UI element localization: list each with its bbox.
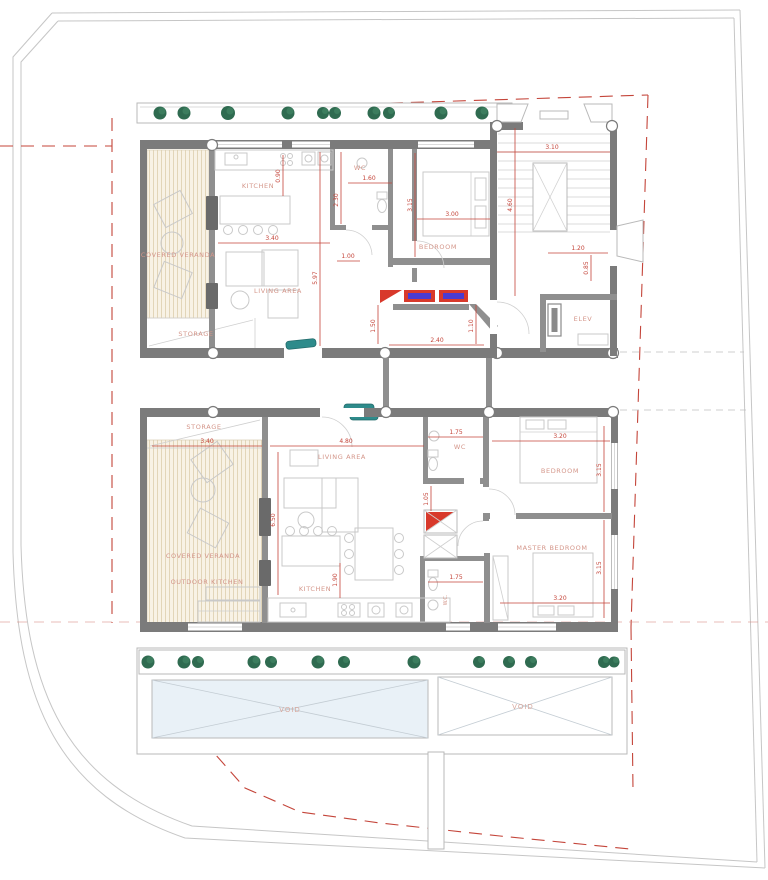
door-arc-master [458, 521, 483, 546]
room-label-storage-upper: STORAGE [178, 330, 213, 338]
dim-lower-bedroom-height: 3.15 [596, 463, 603, 477]
dim-upper-bedroom-width: 3.00 [445, 211, 459, 218]
dim-upper-kitchen-depth: 0.90 [275, 169, 282, 183]
room-label-wc2-lower: W.C. [443, 595, 449, 606]
closet-units-red [380, 290, 468, 303]
dim-lower-bedroom-width: 3.20 [553, 433, 567, 440]
dim-upper-veranda-width: 3.40 [265, 235, 279, 242]
void-right: VOID [438, 677, 612, 735]
dim-upper-stair-height: 4.60 [507, 198, 514, 212]
master-bedroom-furniture [533, 553, 593, 617]
room-label-wc-upper: WC [354, 164, 366, 172]
dim-upper-elev-height: 0.85 [583, 261, 590, 275]
dim-upper-elev-width: 1.20 [571, 245, 585, 252]
dim-corridor-width: 2.40 [430, 337, 444, 344]
room-label-elev: ELEV [574, 315, 593, 323]
floor-plan-page: COVERED VERANDA STORAGE KITCHEN WC LIVIN… [0, 0, 768, 880]
dim-master-height: 3.15 [596, 561, 603, 575]
void-left-label: VOID [279, 706, 301, 714]
room-label-outdoor-kitchen: OUTDOOR KITCHEN [171, 578, 244, 586]
room-label-storage-lower: STORAGE [186, 423, 221, 431]
dim-lower-living-height: 6.50 [270, 513, 277, 527]
dim-wc2-width: 1.75 [449, 574, 463, 581]
dim-upper-wc-width: 1.60 [362, 175, 376, 182]
dim-lower-wc-height: 1.05 [423, 492, 430, 506]
dim-upper-hall-width: 1.00 [341, 253, 355, 260]
room-label-living-upper: LIVING AREA [254, 287, 302, 295]
living-upper-furniture [226, 250, 298, 318]
dim-upper-hall-height: 1.50 [370, 319, 377, 333]
covered-veranda-floor-lower [147, 440, 262, 623]
door-arc-stair [497, 302, 529, 334]
dim-corridor-height: 1.10 [468, 319, 475, 333]
kitchen-upper-furniture [215, 150, 333, 235]
projection-dash-lines [620, 352, 746, 410]
dim-lower-wc-width: 1.75 [449, 429, 463, 436]
floor-plan-canvas: COVERED VERANDA STORAGE KITCHEN WC LIVIN… [0, 0, 768, 880]
garden-wall-pillar [428, 752, 444, 849]
door-arc-wc-upper [346, 230, 372, 255]
room-label-covered-veranda-lower: COVERED VERANDA [166, 552, 240, 560]
room-label-master-bedroom: MASTER BEDROOM [516, 544, 587, 552]
bedroom-upper-furniture [423, 172, 489, 236]
duct-shaft [424, 510, 457, 558]
void-pool-left: VOID [152, 680, 428, 738]
room-label-bedroom-lower: BEDROOM [541, 467, 579, 475]
dim-lower-living-width: 4.80 [339, 438, 353, 445]
dim-lower-kitchen-height: 1.90 [332, 573, 339, 587]
elevator-room: ELEV [540, 294, 617, 352]
dim-upper-wc-height: 2.30 [333, 193, 340, 207]
room-label-bedroom-upper: BEDROOM [419, 243, 457, 251]
room-label-kitchen-lower: KITCHEN [299, 585, 331, 593]
dim-lower-veranda-width: 3.40 [200, 438, 214, 445]
room-label-wc-lower: WC [454, 443, 466, 451]
room-label-living-lower: LIVING AREA [318, 453, 366, 461]
door-arc-bedroom-lower [489, 489, 515, 515]
planter-strip-top [137, 103, 512, 123]
room-label-kitchen-upper: KITCHEN [242, 182, 274, 190]
teal-planter-box-1 [286, 338, 317, 349]
stair-core: ELEV [490, 104, 643, 358]
living-lower-furniture [284, 450, 358, 532]
room-label-covered-veranda-upper: COVERED VERANDA [141, 251, 215, 259]
void-right-label: VOID [512, 703, 534, 711]
dim-upper-living-height: 5.97 [312, 271, 319, 285]
dim-upper-stair-width: 3.10 [545, 144, 559, 151]
dim-upper-bedroom-height: 3.15 [407, 198, 414, 212]
pool-deck: VOID VOID [137, 648, 627, 849]
dim-master-width: 3.20 [553, 595, 567, 602]
